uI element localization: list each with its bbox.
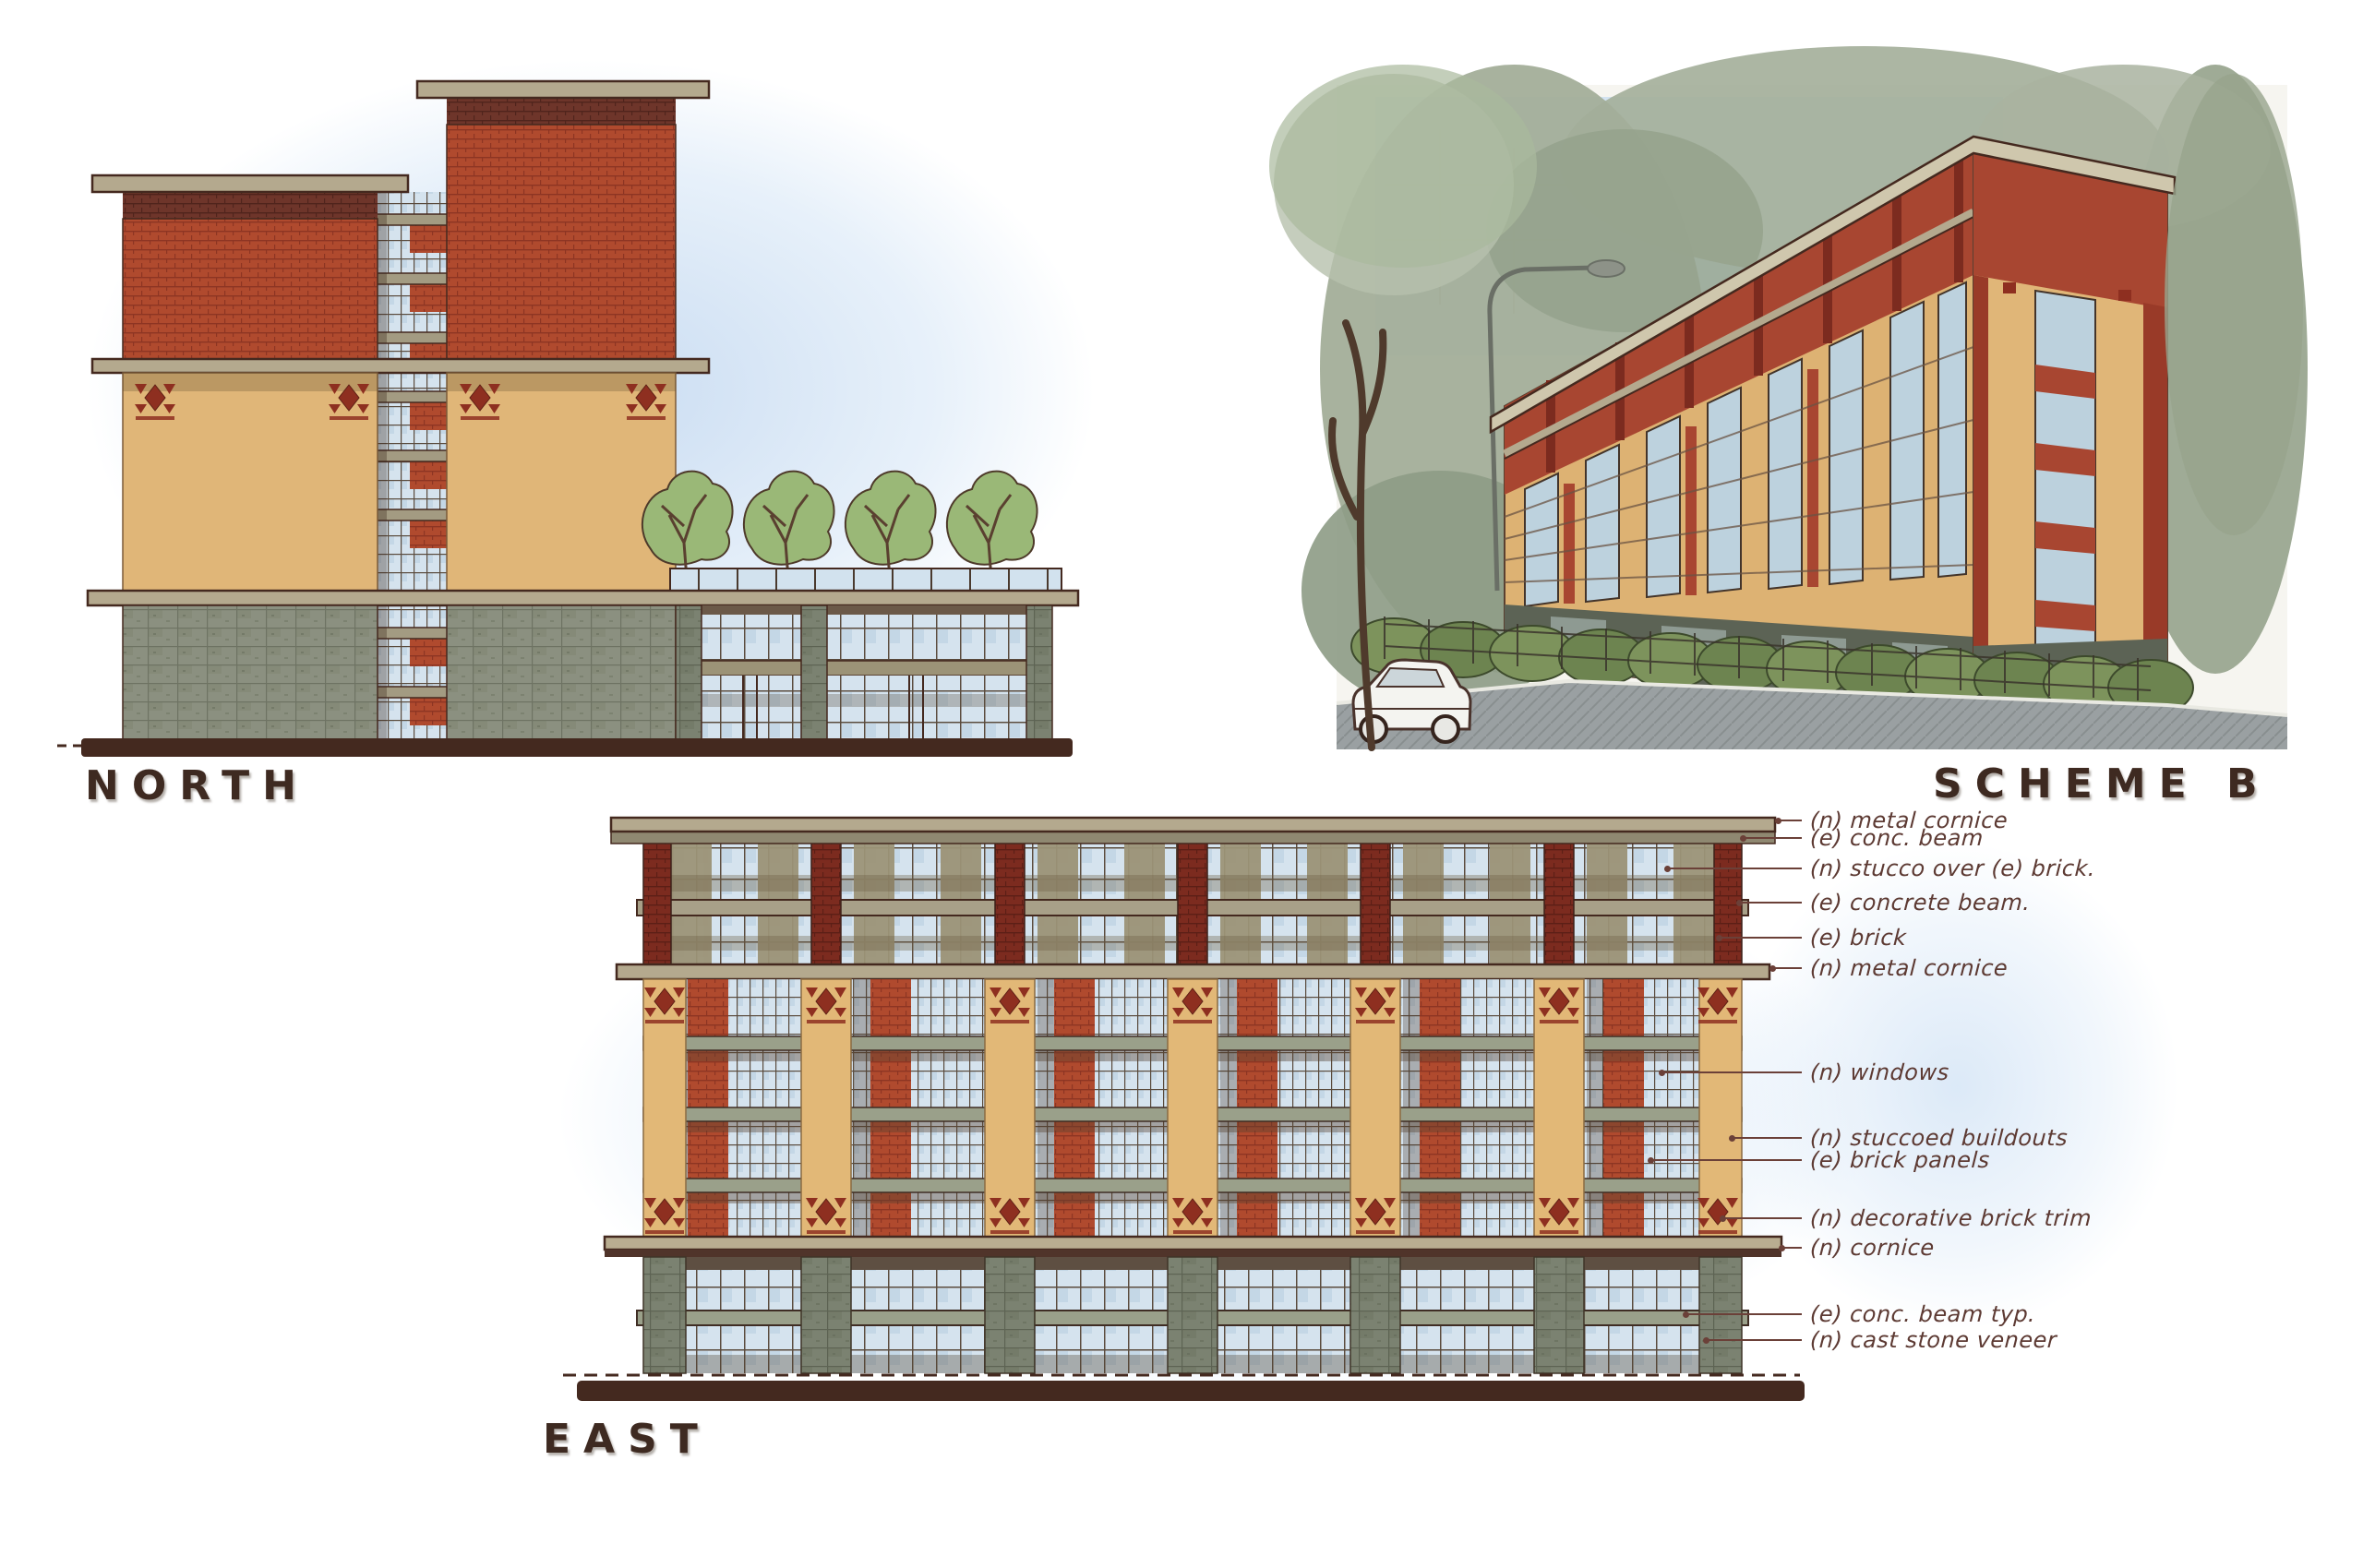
leader-line: [1667, 868, 1802, 869]
east-upper-zone: [611, 818, 1775, 979]
annotation-row: (n) windows: [1661, 1061, 1949, 1083]
ground-bar: [577, 1381, 1805, 1401]
east-middle-zone: [643, 979, 1742, 1237]
north-left-block: [92, 175, 408, 359]
leader-line: [1778, 820, 1802, 821]
annotation-row: (e) conc. beam typ.: [1685, 1303, 2035, 1325]
leader-line: [1772, 967, 1802, 969]
annotation-row: (e) conc. beam: [1743, 827, 1984, 849]
annotation-row: (n) stucco over (e) brick.: [1667, 857, 2095, 880]
leader-line: [1650, 1159, 1802, 1161]
presentation-sheet: NORTH SCHEME B EAST (n) metal cornice (e…: [0, 0, 2363, 1568]
east-base-zone: [563, 1257, 1805, 1401]
annotation-row: (e) brick panels: [1650, 1149, 1990, 1171]
north-ground-line: [57, 738, 1073, 757]
cast-stone-piers: [643, 1257, 1742, 1373]
annotation-label: (n) decorative brick trim: [1809, 1207, 2092, 1229]
annotation-row: (n) decorative brick trim: [1722, 1207, 2092, 1229]
north-podium-storefront: [676, 605, 1052, 740]
leader-line: [1743, 837, 1802, 839]
existing-conc-beam: [611, 832, 1775, 844]
east-title: EAST: [543, 1416, 711, 1463]
annotation-label: (n) stuccoed buildouts: [1809, 1127, 2068, 1149]
car-wheel: [1433, 716, 1458, 742]
annotation-label: (e) conc. beam: [1809, 827, 1984, 849]
annotation-label: (n) windows: [1809, 1061, 1949, 1083]
scheme-b-perspective-drawing: [1329, 78, 2294, 757]
annotation-row: (e) concrete beam.: [1739, 892, 2031, 914]
north-elevation-drawing: [55, 46, 1089, 775]
annotation-label: (e) conc. beam typ.: [1809, 1303, 2036, 1325]
annotation-label: (n) cornice: [1809, 1237, 1935, 1259]
north-podium-roof-slab: [88, 591, 1078, 605]
leader-line: [1661, 1071, 1802, 1073]
annotation-row: (n) cornice: [1781, 1237, 1935, 1259]
annotation-row: (n) stuccoed buildouts: [1732, 1127, 2068, 1149]
north-roof-deck: [642, 472, 1062, 592]
annotation-label: (n) metal cornice: [1809, 957, 2008, 979]
north-band-slab: [92, 359, 709, 373]
north-title: NORTH: [85, 762, 309, 809]
annotation-row: (e) brick: [1719, 927, 1906, 949]
annotation-label: (e) brick panels: [1809, 1149, 1990, 1171]
east-elevation-drawing: [554, 812, 1809, 1412]
leader-line: [1781, 1247, 1802, 1249]
metal-cornice-second: [617, 964, 1769, 979]
north-right-tower: [417, 81, 709, 359]
annotation-label: (e) brick: [1809, 927, 1907, 949]
annotation-label: (n) cast stone veneer: [1809, 1329, 2057, 1351]
leader-line: [1722, 1217, 1802, 1219]
annotation-label: (e) concrete beam.: [1809, 892, 2031, 914]
leader-line: [1706, 1339, 1802, 1341]
glass-parapet: [670, 569, 1062, 592]
leader-line: [1732, 1137, 1802, 1139]
leader-line: [1739, 902, 1802, 904]
leader-line: [1685, 1313, 1802, 1315]
east-cornice: [605, 1237, 1781, 1257]
annotation-row: (n) cast stone veneer: [1706, 1329, 2057, 1351]
metal-cornice-top: [611, 818, 1775, 832]
annotation-label: (n) stucco over (e) brick.: [1809, 857, 2095, 880]
scheme-b-title: SCHEME B: [1933, 760, 2271, 808]
north-center-bay: [374, 192, 450, 738]
annotation-row: (n) metal cornice: [1772, 957, 2008, 979]
end-corner-brick: [2143, 303, 2167, 696]
leader-line: [1719, 937, 1802, 939]
